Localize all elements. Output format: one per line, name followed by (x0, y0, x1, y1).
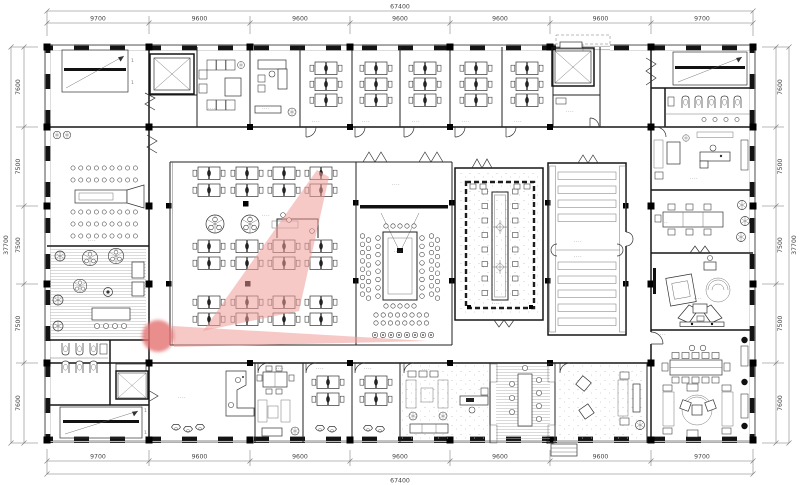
dim-bottom-seg6: 9700 (694, 454, 710, 461)
room-label: ···· (362, 120, 370, 125)
lounge-top-left (199, 60, 245, 110)
tea-room-bottom (490, 364, 555, 443)
meeting-room-bottom-small: ···· (257, 366, 299, 436)
formal-meeting-room: ···· (455, 159, 543, 327)
elevator-top-right (552, 42, 594, 86)
stairwell-top-left (62, 50, 128, 92)
toilets-top-right (665, 96, 750, 122)
room-top-right (556, 98, 599, 127)
room-label: ···· (276, 367, 284, 372)
room-label: ···· (658, 333, 666, 338)
room-label: ···· (262, 107, 270, 112)
meeting-room-right: ···· (655, 201, 750, 242)
dim-bottom-seg3: 9600 (392, 454, 408, 461)
stair-mark: 1 (144, 430, 148, 436)
floor-plan-canvas: 67400 9700 9600 9600 9600 9600 9600 9700… (0, 0, 800, 485)
dim-right-seg2: 7500 (777, 237, 784, 253)
exterior-steps (551, 444, 577, 456)
room-label: ···· (412, 120, 420, 125)
dimension-left: 37700 7600 7500 7500 7500 7600 (3, 45, 38, 446)
elevator-top-left (150, 54, 194, 94)
dim-left-seg2: 7500 (15, 237, 22, 253)
lounge-bottom (557, 363, 645, 443)
dim-left-total: 37700 (3, 235, 10, 255)
floor-plan-page: 67400 9700 9600 9600 9600 9600 9600 9700… (0, 0, 800, 485)
room-label: ···· (462, 120, 470, 125)
dim-bottom-seg0: 9700 (90, 454, 106, 461)
room-label: ···· (392, 183, 400, 188)
annotation-click-marker (142, 320, 174, 352)
room-label: ···· (316, 367, 324, 372)
dim-right-seg1: 7500 (777, 159, 784, 175)
office-right-1: ···· (654, 127, 748, 182)
dim-left-seg1: 7500 (15, 159, 22, 175)
room-label: ···· (88, 239, 96, 244)
dim-bottom-seg5: 9600 (593, 454, 609, 461)
office-bottom-a: ···· (312, 367, 344, 433)
dim-bottom-total: 67400 (390, 478, 410, 485)
reception-room-bottom: ···· (172, 371, 255, 433)
room-label: ···· (514, 120, 522, 125)
room-label: ···· (178, 396, 186, 401)
room-label: ···· (694, 297, 702, 302)
dim-right-seg0: 7600 (777, 79, 784, 95)
room-label: ···· (660, 221, 668, 226)
stair-mark: 1 (131, 58, 135, 64)
dim-right-seg4: 7600 (777, 395, 784, 411)
room-label: ···· (492, 302, 500, 307)
room-label: ···· (312, 120, 320, 125)
room-label: ···· (364, 367, 372, 372)
dim-top-seg4: 9600 (492, 16, 508, 23)
archive-room: ···· ···· (548, 155, 633, 335)
dim-bottom-seg2: 9600 (292, 454, 308, 461)
dimension-bottom: 67400 9700 9600 9600 9600 9600 9600 9700 (45, 449, 756, 485)
dim-top-seg1: 9600 (192, 16, 208, 23)
dim-top-seg0: 9700 (90, 16, 106, 23)
room-label: ···· (422, 368, 430, 373)
executive-suite-right: ···· (650, 332, 748, 437)
room-label: ···· (208, 107, 216, 112)
dim-right-total: 37700 (791, 235, 798, 255)
room-label: ···· (690, 177, 698, 182)
room-label: ···· (574, 255, 582, 260)
training-room (53, 131, 144, 238)
room-label: ···· (262, 214, 270, 219)
building-shell (44, 35, 757, 456)
dim-top-total: 67400 (390, 4, 410, 11)
room-label: ···· (566, 110, 574, 115)
dim-left-seg0: 7600 (15, 79, 22, 95)
multimedia-room-right: ···· (653, 246, 730, 327)
dim-top-seg3: 9600 (392, 16, 408, 23)
open-plan-offices-top (306, 62, 543, 137)
room-label: ···· (394, 250, 402, 255)
stair-mark: 1 (131, 80, 135, 86)
dim-bottom-seg1: 9600 (192, 454, 208, 461)
room-label: ···· (574, 240, 582, 245)
dim-left-seg4: 7600 (15, 395, 22, 411)
elevator-bottom-left (116, 364, 148, 399)
dim-right-seg3: 7500 (777, 316, 784, 332)
dim-top-seg5: 9600 (593, 16, 609, 23)
office-bottom-b: ···· (360, 367, 392, 433)
conference-room-center: ···· ···· (356, 152, 452, 345)
dim-top-seg2: 9600 (292, 16, 308, 23)
toilets-bottom-left (50, 343, 108, 373)
dimension-right: 37700 7600 7500 7500 7500 7600 (762, 45, 798, 446)
break-lounge-room (50, 248, 146, 338)
stair-mark: 1 (144, 408, 148, 414)
dim-top-seg6: 9700 (694, 16, 710, 23)
dim-bottom-seg4: 9600 (492, 454, 508, 461)
executive-office-bottom: ···· (402, 364, 488, 441)
stairwell-top-right (673, 52, 747, 85)
dimension-top: 67400 9700 9600 9600 9600 9600 9600 9700 (45, 4, 756, 37)
stairwell-bottom-left (60, 407, 142, 438)
dim-left-seg3: 7500 (15, 316, 22, 332)
